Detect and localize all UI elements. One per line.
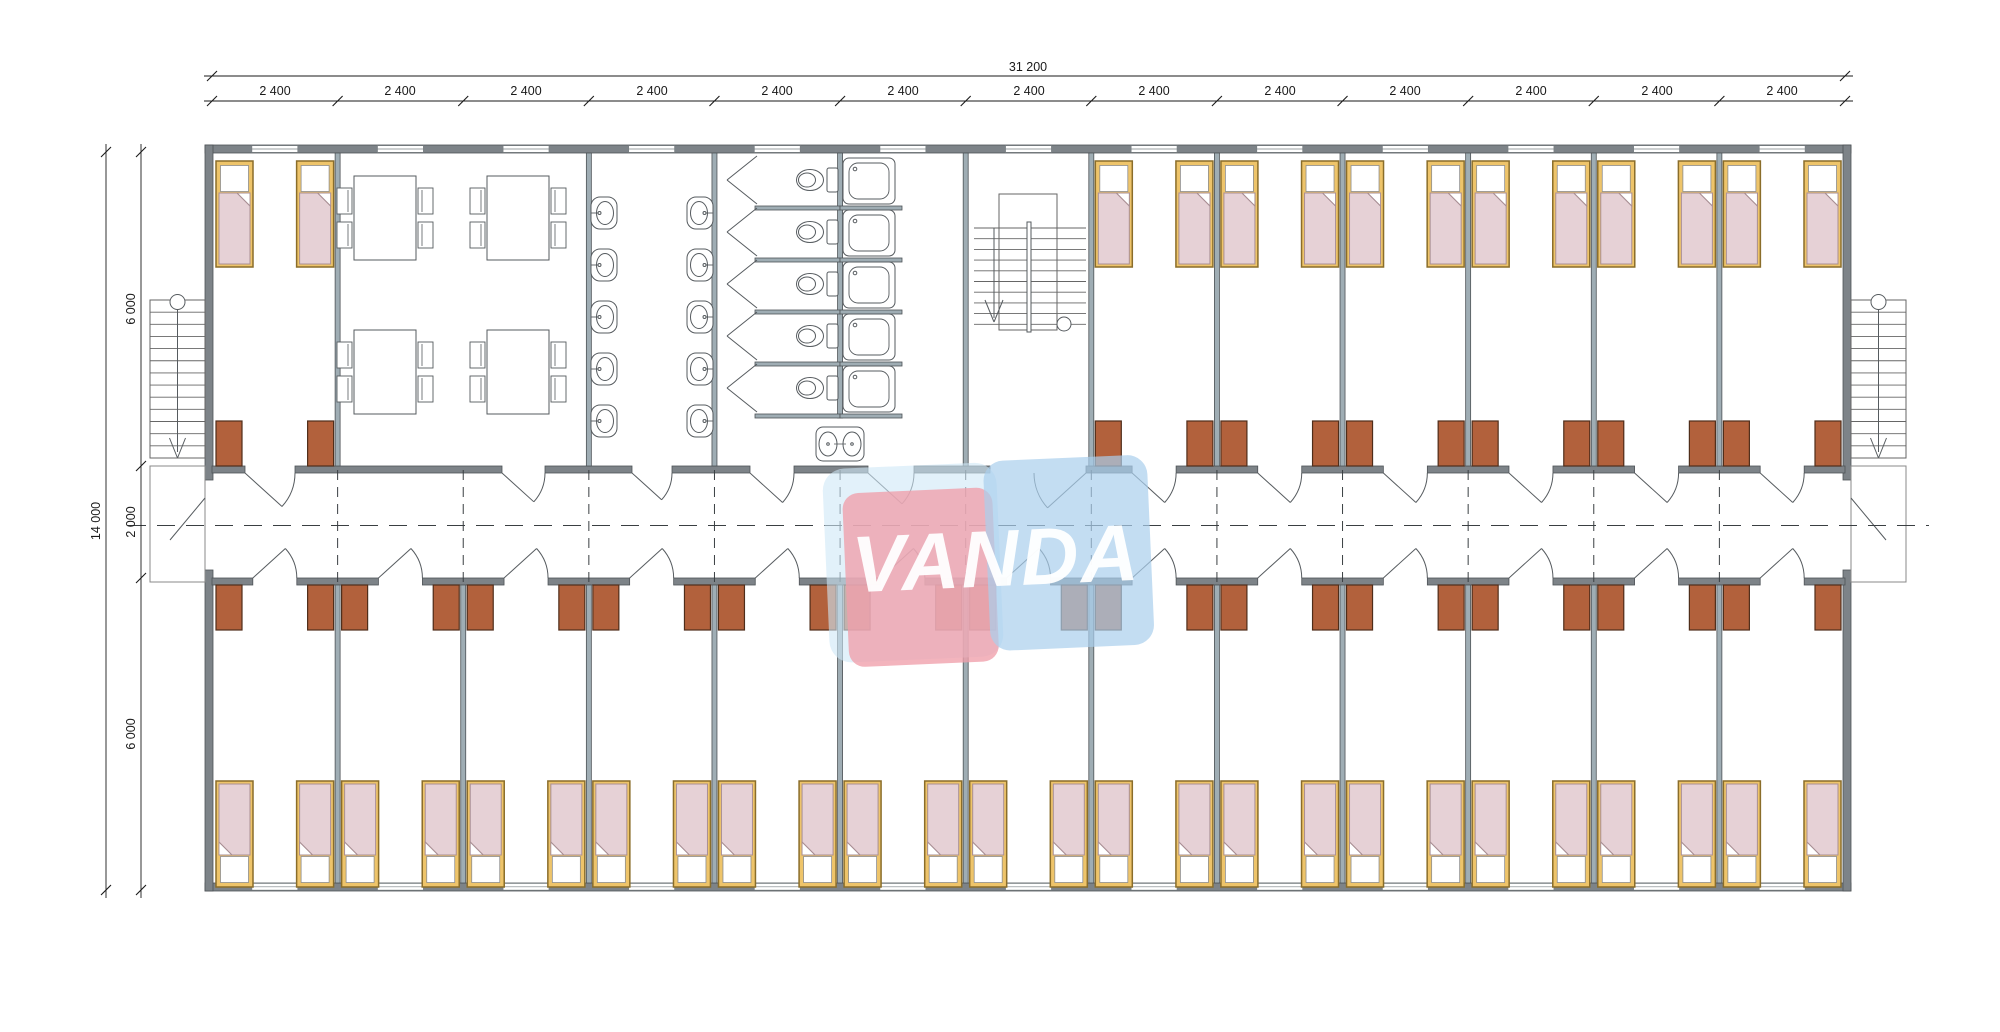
partition-wall [1340,153,1345,466]
wardrobe [1313,585,1339,630]
partition-wall [1717,153,1722,466]
partition-wall [1340,585,1345,883]
wardrobe [1689,421,1715,466]
door-arc [1290,473,1301,502]
bed-mattress [1098,784,1129,855]
stair-arrow [178,438,186,458]
watermark-text: VANDA [850,508,1142,610]
door-leaf [1509,473,1542,502]
segment-width-label: 2 400 [1389,84,1420,98]
bed-pillow [1100,857,1128,883]
segment-width-label: 2 400 [510,84,541,98]
door-arc [1416,473,1427,502]
corridor-wall-top [1804,466,1845,473]
door-arc [1667,473,1678,502]
stall-divider [840,206,902,210]
wardrobe [1313,421,1339,466]
partition-wall [963,153,968,466]
bed-pillow [1602,857,1630,883]
bed-mattress [1556,193,1587,264]
chair [337,342,352,368]
bed-pillow [1728,857,1756,883]
corridor-wall-bottom [212,578,253,585]
wardrobe [1598,585,1624,630]
stair-start-marker [1871,295,1886,310]
bed-pillow [804,857,832,883]
stall-door-leaf [727,180,757,204]
bed-mattress [928,784,959,855]
stall-door-swing [727,364,757,388]
chair [551,342,566,368]
segment-width-label: 2 400 [1013,84,1044,98]
entry-landing [150,466,205,582]
stall-door-swing [727,260,757,284]
toilet-bowl [797,274,824,295]
bed-pillow [221,166,249,192]
bed-pillow [1557,166,1585,192]
bed-mattress [676,784,707,855]
door-leaf [1760,473,1793,502]
bed-mattress [1305,193,1336,264]
segment-width-label: 2 400 [1766,84,1797,98]
bed-pillow [472,857,500,883]
chair [551,188,566,214]
bed-mattress [1430,193,1461,264]
bed-pillow [849,857,877,883]
segment-width-label: 2 400 [1138,84,1169,98]
bed-pillow [1351,166,1379,192]
shower-tray [849,163,889,199]
stall-divider [755,310,840,314]
door-arc [285,549,296,578]
segment-width-label: 2 400 [636,84,667,98]
bed-mattress [1475,193,1506,264]
chair [470,376,485,402]
stall-door-leaf [727,388,757,412]
door-leaf [1383,473,1416,502]
door-arc [411,549,422,578]
bed-mattress [425,784,456,855]
exterior-wall-right [1843,145,1851,480]
bed-pillow [1728,166,1756,192]
bed-pillow [1306,166,1334,192]
stall-door-swing [727,156,757,180]
door-leaf [632,473,662,500]
partition-wall [1466,153,1471,466]
toilet-tank [827,168,838,192]
chair [337,376,352,402]
chair [470,222,485,248]
toilet-tank [827,376,838,400]
chair [470,188,485,214]
corridor-wall-bottom [1804,578,1845,585]
toilet-tank [827,324,838,348]
stall-divider [755,414,840,418]
wardrobe [308,421,334,466]
door-leaf [1509,549,1542,578]
door-arc [1542,549,1553,578]
bed-pillow [597,857,625,883]
dining-table [354,330,416,414]
bed-mattress [219,784,250,855]
bed-pillow [1557,857,1585,883]
stall-divider [755,206,840,210]
chair [551,376,566,402]
door-leaf [1258,473,1291,502]
bed-mattress [721,784,752,855]
door-arc [1416,549,1427,578]
shower-tray [849,267,889,303]
door-leaf [1258,549,1291,578]
bed-pillow [1180,166,1208,192]
stall-door-leaf [727,232,757,256]
chair [470,342,485,368]
bed-pillow [974,857,1002,883]
door-arc [1667,549,1678,578]
toilet-tank [827,220,838,244]
door-arc [662,473,672,500]
wardrobe [1723,421,1749,466]
bed-pillow [1055,857,1083,883]
segment-width-label: 2 400 [1264,84,1295,98]
chair [337,222,352,248]
wardrobe [1815,421,1841,466]
door-leaf [1760,549,1793,578]
door-leaf [630,549,663,578]
door-leaf [378,549,411,578]
bed-mattress [1807,193,1838,264]
bed-pillow [1180,857,1208,883]
bed-mattress [345,784,376,855]
shower-tray [849,371,889,407]
vanda-watermark: VANDA [822,454,1155,668]
chair [551,222,566,248]
exterior-wall-left [205,570,213,891]
bed-mattress [1601,193,1632,264]
bed-mattress [1556,784,1587,855]
wardrobe [1221,585,1247,630]
wardrobe [684,585,710,630]
chair [418,342,433,368]
partition-wall [1214,153,1219,466]
stall-divider [840,414,902,418]
bed-mattress [802,784,833,855]
wardrobe [1815,585,1841,630]
dining-table [354,176,416,260]
door-leaf [750,473,783,502]
bed-pillow [1683,857,1711,883]
door-leaf [245,473,282,507]
toilet-bowl [797,378,824,399]
bed-mattress [1350,193,1381,264]
stall-divider [840,310,902,314]
wardrobe [559,585,585,630]
door-arc [537,549,548,578]
wardrobe [1723,585,1749,630]
segment-height-label: 6 000 [124,718,138,749]
partition-wall [1214,585,1219,883]
wardrobe [1221,421,1247,466]
segment-width-label: 2 400 [259,84,290,98]
bed-mattress [300,784,331,855]
bed-mattress [847,784,878,855]
segment-width-label: 2 400 [1641,84,1672,98]
bed-mattress [973,784,1004,855]
door-arc [1165,549,1176,578]
door-arc [1793,549,1804,578]
bed-pillow [1225,857,1253,883]
door-leaf [504,549,537,578]
segment-width-label: 2 400 [761,84,792,98]
chair [418,376,433,402]
wardrobe [342,585,368,630]
door-arc [282,473,295,507]
segment-height-label: 2 000 [124,506,138,537]
stair-start-marker [170,295,185,310]
stair-start-marker [1057,317,1071,331]
door-arc [788,549,799,578]
toilet-bowl [797,222,824,243]
bed-pillow [301,857,329,883]
bed-mattress [1179,784,1210,855]
toilet-bowl [797,326,824,347]
door-leaf [1635,473,1668,502]
entry-door-leaf [170,498,205,540]
wardrobe [216,421,242,466]
bed-pillow [1683,166,1711,192]
bed-mattress [1350,784,1381,855]
partition-wall [586,585,591,883]
chair [418,222,433,248]
bed-pillow [301,166,329,192]
door-arc [1542,473,1553,502]
bed-mattress [1681,784,1712,855]
bed-mattress [1681,193,1712,264]
bed-pillow [1100,166,1128,192]
chair [337,188,352,214]
bed-mattress [1807,784,1838,855]
bed-pillow [1809,166,1837,192]
partition-wall [1717,585,1722,883]
stair-rail [1027,222,1031,332]
wardrobe [308,585,334,630]
bed-mattress [1224,193,1255,264]
bed-pillow [1225,166,1253,192]
bed-mattress [1053,784,1084,855]
door-arc [1165,473,1176,502]
bed-mattress [551,784,582,855]
wardrobe [718,585,744,630]
bed-pillow [1306,857,1334,883]
total-width-label: 31 200 [1009,60,1047,74]
entry-landing [1851,466,1906,582]
bed-mattress [300,193,331,264]
stall-door-swing [727,208,757,232]
door-arc [1290,549,1301,578]
segment-height-label: 6 000 [124,293,138,324]
wardrobe [1564,585,1590,630]
shower-tray [849,319,889,355]
segment-width-label: 2 400 [1515,84,1546,98]
dining-table [487,176,549,260]
wardrobe [1564,421,1590,466]
wardrobe [1598,421,1624,466]
wardrobe [1187,421,1213,466]
bed-mattress [1224,784,1255,855]
stall-divider [755,362,840,366]
partition-wall [1591,585,1596,883]
bed-pillow [1351,857,1379,883]
bed-pillow [1602,166,1630,192]
bed-pillow [346,857,374,883]
bed-mattress [1475,784,1506,855]
entry-door-leaf [1851,498,1886,540]
bed-pillow [1477,166,1505,192]
stall-door-leaf [727,284,757,308]
wardrobe [593,585,619,630]
wardrobe [216,585,242,630]
bed-pillow [1432,857,1460,883]
stair-arrow [1879,438,1887,458]
segment-width-label: 2 400 [887,84,918,98]
toilet-bowl [797,170,824,191]
stall-door-swing [727,312,757,336]
bed-pillow [1809,857,1837,883]
door-arc [534,473,545,502]
toilet-tank [827,272,838,296]
dining-table [487,330,549,414]
bed-pillow [678,857,706,883]
bed-pillow [723,857,751,883]
wardrobe [1472,421,1498,466]
exterior-wall-left [205,145,213,480]
bed-mattress [1726,193,1757,264]
wardrobe [433,585,459,630]
door-leaf [755,549,788,578]
bed-pillow [1477,857,1505,883]
bed-mattress [1430,784,1461,855]
bed-pillow [221,857,249,883]
bed-pillow [1432,166,1460,192]
partition-wall [461,585,466,883]
corridor-wall-top [212,466,245,473]
corridor-wall-top [672,466,750,473]
wardrobe [467,585,493,630]
partition-wall [712,585,717,883]
exterior-wall-right [1843,570,1851,891]
partition-wall [1466,585,1471,883]
total-height-label: 14 000 [89,502,103,540]
bed-mattress [1179,193,1210,264]
floor-plan-drawing: VANDA 31 200 2 400 2 400 2 400 2 400 2 4… [0,0,2000,1032]
door-arc [1793,473,1804,502]
chair [418,188,433,214]
corridor-wall-top [295,466,502,473]
segment-width-label: 2 400 [384,84,415,98]
floor-plan-canvas: VANDA 31 200 2 400 2 400 2 400 2 400 2 4… [0,0,2000,1032]
stall-divider [755,258,840,262]
door-arc [783,473,794,502]
bed-mattress [1098,193,1129,264]
door-leaf [1383,549,1416,578]
partition-wall [335,585,340,883]
wardrobe [1472,585,1498,630]
wardrobe [1438,421,1464,466]
wardrobe [1187,585,1213,630]
stall-divider [840,258,902,262]
stall-divider [840,362,902,366]
bed-mattress [596,784,627,855]
door-leaf [1635,549,1668,578]
bed-pillow [427,857,455,883]
door-leaf [502,473,534,502]
bed-mattress [219,193,250,264]
wardrobe [1347,585,1373,630]
wardrobe [1438,585,1464,630]
stall-door-leaf [727,336,757,360]
bed-pillow [929,857,957,883]
wardrobe [1689,585,1715,630]
bed-mattress [1601,784,1632,855]
wardrobe [1347,421,1373,466]
partition-wall [1089,153,1094,466]
shower-tray [849,215,889,251]
bed-mattress [1305,784,1336,855]
stair-arrow [1871,438,1879,458]
door-leaf [253,549,286,578]
door-arc [662,549,673,578]
bed-mattress [470,784,501,855]
stair-arrow [170,438,178,458]
partition-wall [1591,153,1596,466]
bed-mattress [1726,784,1757,855]
bed-pillow [552,857,580,883]
